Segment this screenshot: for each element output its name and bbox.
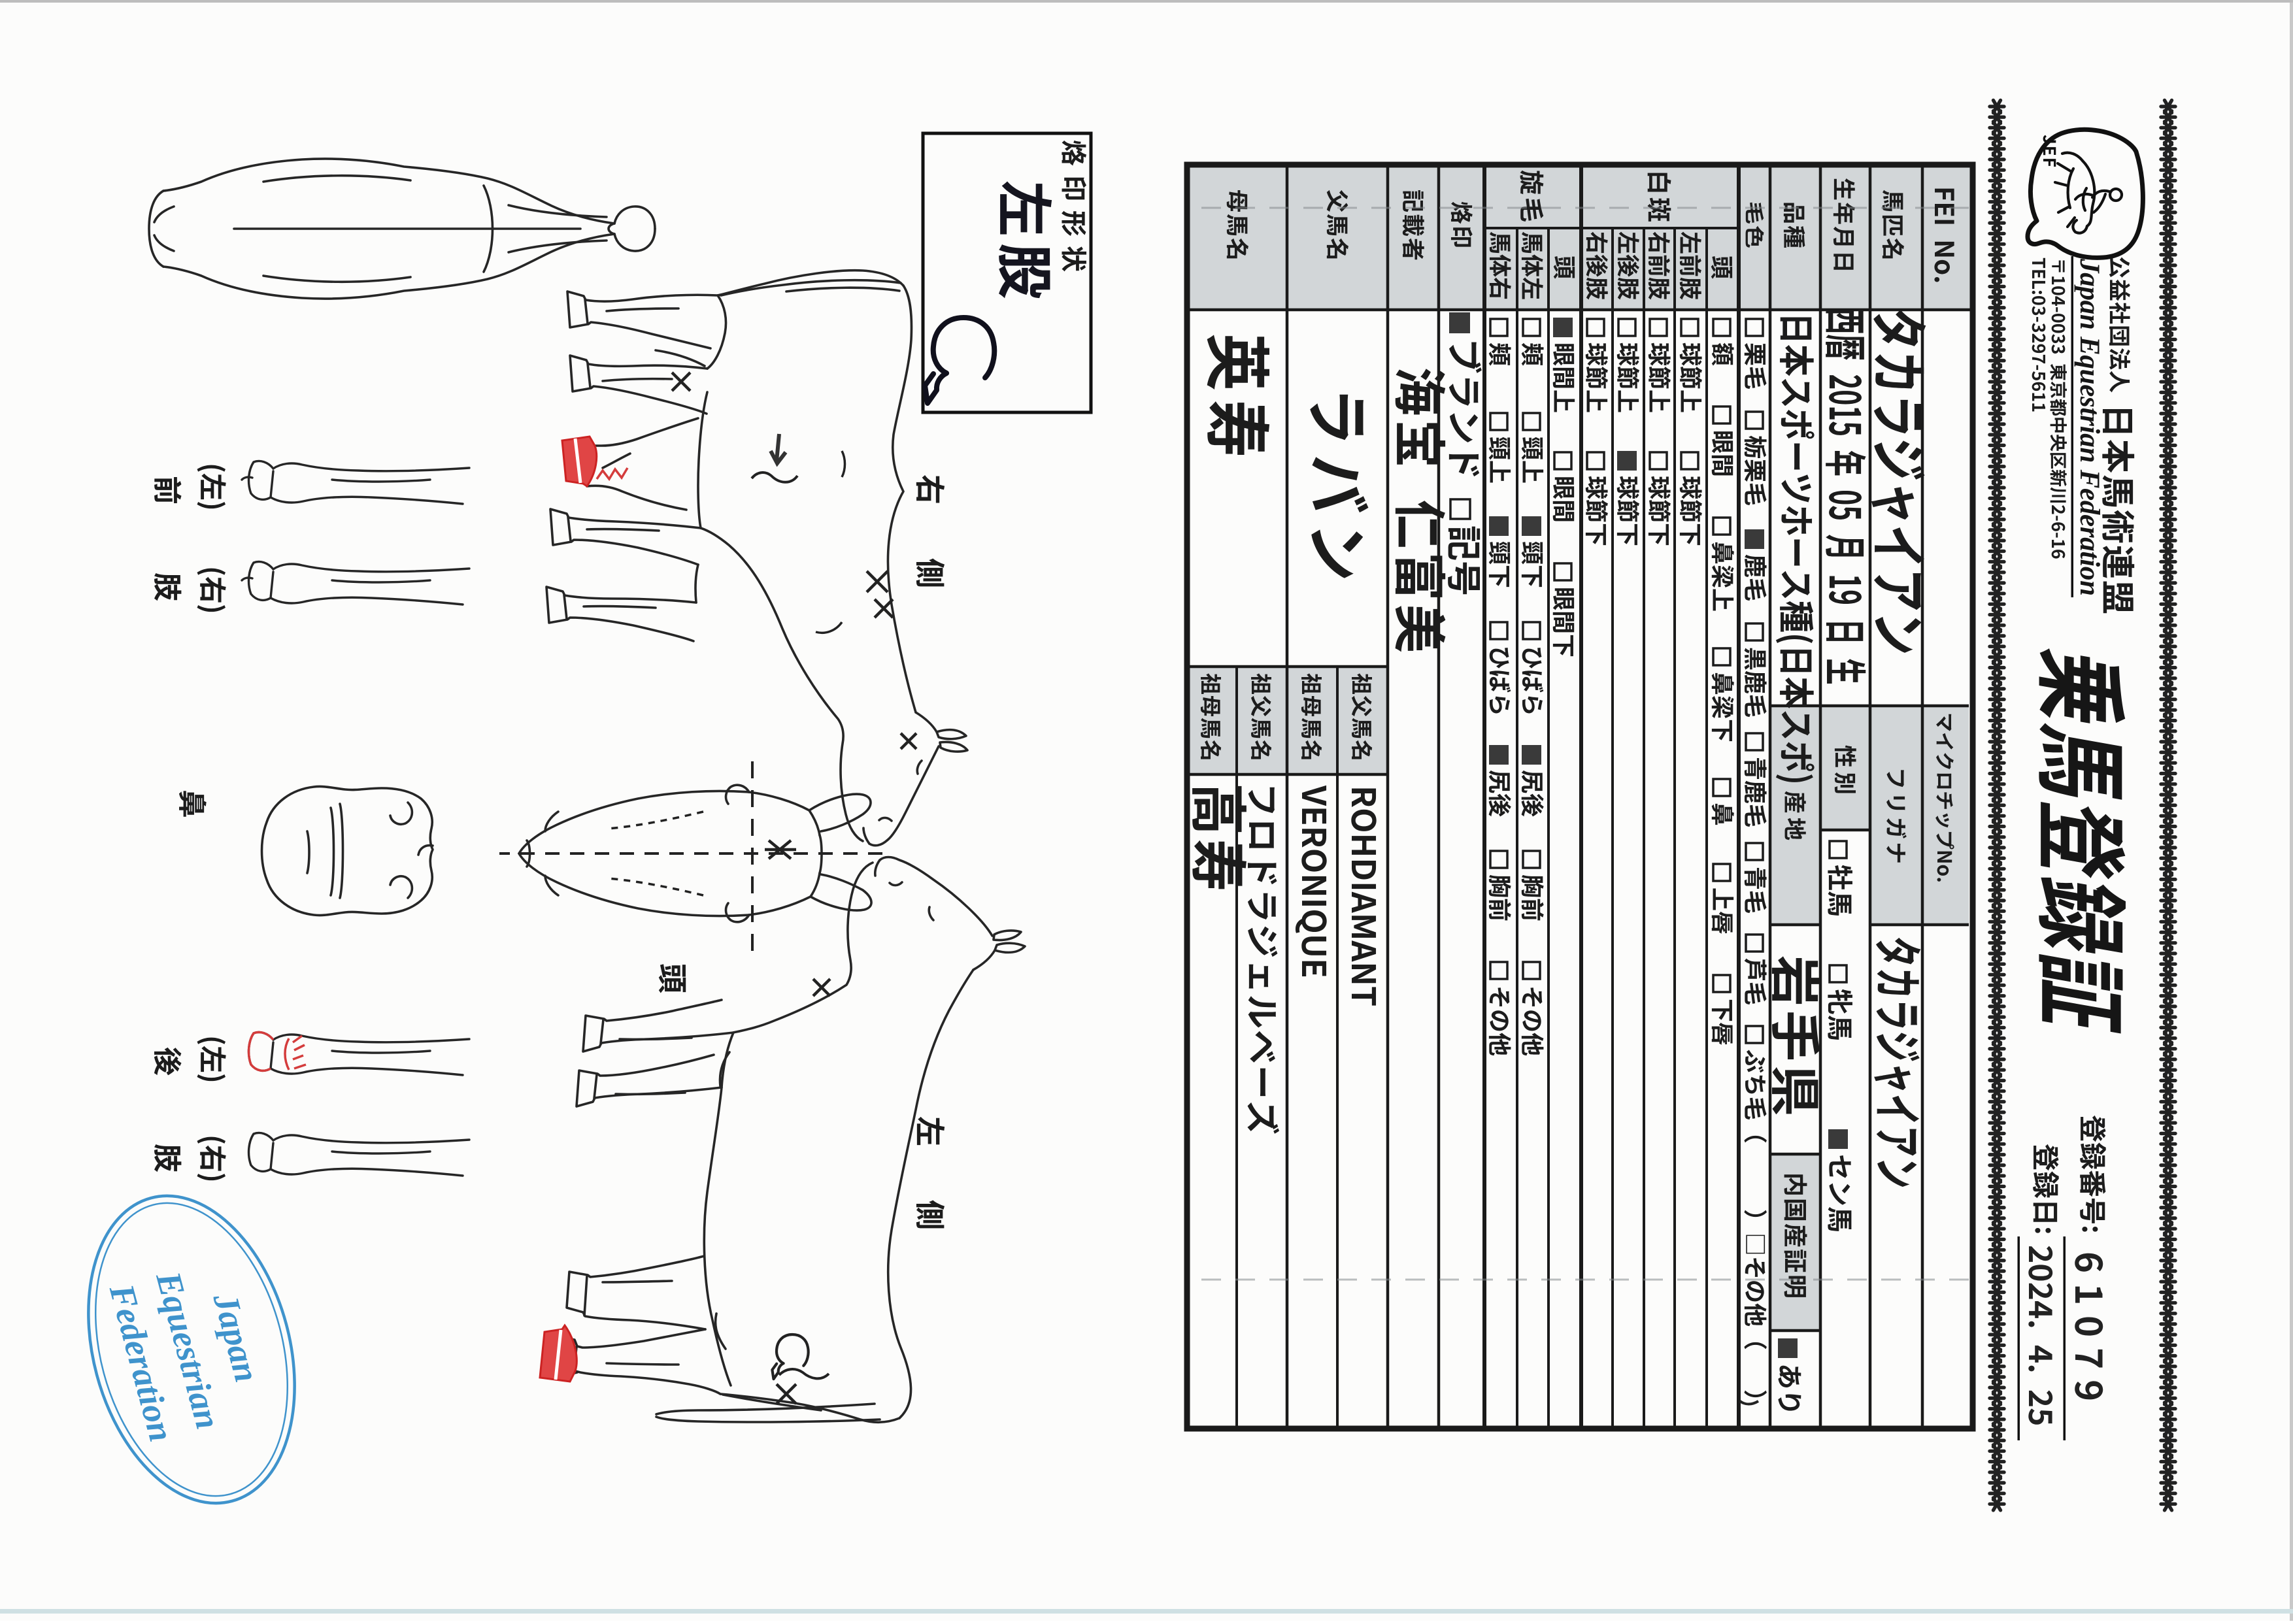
svg-text:Japan Equestrian Federation: Japan Equestrian Federation — [2074, 258, 2105, 596]
